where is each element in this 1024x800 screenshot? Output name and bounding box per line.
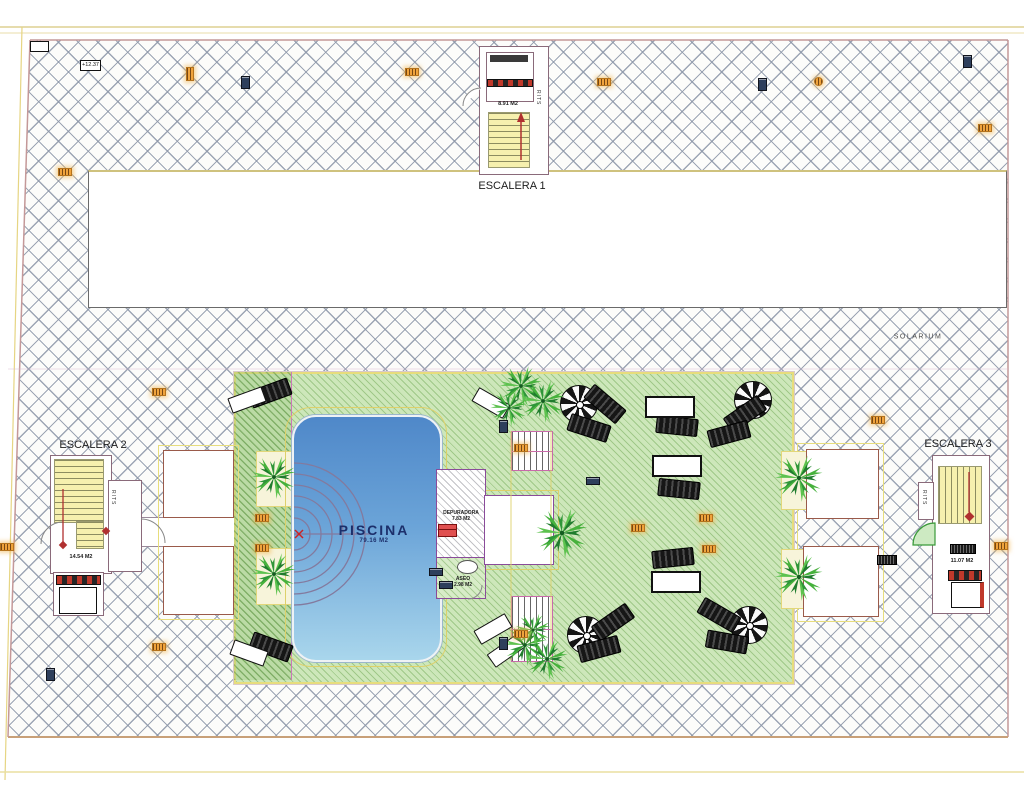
storage-box — [163, 450, 234, 518]
solarium-label: SOLARIUM — [894, 334, 943, 341]
depuradora-area: 7.83 M2 — [443, 516, 479, 522]
stair2-title: ESCALERA 2 — [59, 439, 126, 451]
palm-tree-icon — [773, 452, 825, 504]
dimension-marker — [186, 67, 194, 81]
stair3-shaft-label: RITS — [921, 490, 927, 505]
aseo-label: ASEO 2.98 M2 — [454, 576, 472, 588]
palm-tree-icon — [489, 388, 529, 428]
palm-tree-icon — [250, 550, 298, 598]
dimension-marker — [631, 524, 645, 532]
dimension-marker — [994, 542, 1008, 550]
stair2-treads — [54, 459, 104, 523]
deck-table — [651, 571, 701, 593]
dimension-marker — [0, 543, 14, 551]
dimension-marker — [699, 514, 713, 522]
stair3-title: ESCALERA 3 — [924, 438, 991, 450]
utility-marker — [46, 668, 55, 681]
stair2-elevator-door — [56, 575, 101, 585]
stair1-treads — [488, 112, 530, 168]
elevation-marker: +12.37 — [80, 60, 101, 71]
stair3-room-badge — [950, 544, 976, 554]
utility-marker — [758, 78, 767, 91]
aseo-area: 2.98 M2 — [454, 582, 472, 588]
utility-marker — [429, 568, 443, 576]
utility-marker — [499, 420, 508, 433]
stair2-area-label: 14.54 M2 — [70, 554, 93, 560]
stair1-machine-bar — [490, 55, 528, 62]
stair3-treads — [938, 466, 982, 524]
deck-table — [652, 455, 702, 477]
stair3-elevator-door — [948, 570, 982, 581]
dimension-marker — [58, 168, 72, 176]
utility-marker — [499, 637, 508, 650]
utility-marker — [241, 76, 250, 89]
site-plan-canvas: PISCINA 79.16 M2 DEPURADORA 7.83 M2 ASEO… — [0, 0, 1024, 800]
pool-label: PISCINA 79.16 M2 — [339, 522, 410, 544]
stair1-title: ESCALERA 1 — [478, 180, 545, 192]
dimension-marker — [514, 630, 528, 638]
stair3-area-label: 11.07 M2 — [951, 558, 974, 564]
palm-tree-icon — [534, 505, 590, 561]
dimension-marker — [978, 124, 992, 132]
dimension-marker — [702, 545, 716, 553]
utility-marker — [963, 55, 972, 68]
survey-marker — [30, 41, 49, 52]
dimension-marker — [255, 514, 269, 522]
stair2-elevator-cab — [59, 587, 97, 614]
dimension-marker — [405, 68, 419, 76]
storage-box — [163, 546, 234, 615]
dimension-marker — [597, 78, 611, 86]
palm-tree-icon — [250, 453, 298, 501]
pump-icon — [438, 524, 457, 537]
elevation-badge — [877, 555, 897, 565]
dimension-marker — [255, 544, 269, 552]
utility-marker — [439, 581, 453, 589]
building-outline — [88, 170, 1007, 308]
dimension-marker — [152, 643, 166, 651]
dimension-marker — [514, 444, 528, 452]
stair1-shaft-label: RITS — [535, 90, 541, 105]
utility-marker — [586, 477, 600, 485]
sink-icon — [457, 560, 478, 574]
stair1-elevator-door — [487, 79, 533, 87]
pool-name: PISCINA — [339, 522, 410, 538]
dimension-marker — [152, 388, 166, 396]
palm-tree-icon — [773, 551, 825, 603]
stair2-shaft-label: RITS — [110, 490, 116, 505]
dimension-marker — [871, 416, 885, 424]
pool-area: 79.16 M2 — [339, 538, 410, 544]
light-marker — [814, 77, 823, 86]
deck-table — [645, 396, 695, 418]
stair3-elevator-cab — [951, 582, 984, 608]
stair1-area-label: 8.91 M2 — [498, 101, 518, 107]
depuradora-label: DEPURADORA 7.83 M2 — [443, 510, 479, 522]
stair2-landing-treads — [76, 521, 104, 549]
